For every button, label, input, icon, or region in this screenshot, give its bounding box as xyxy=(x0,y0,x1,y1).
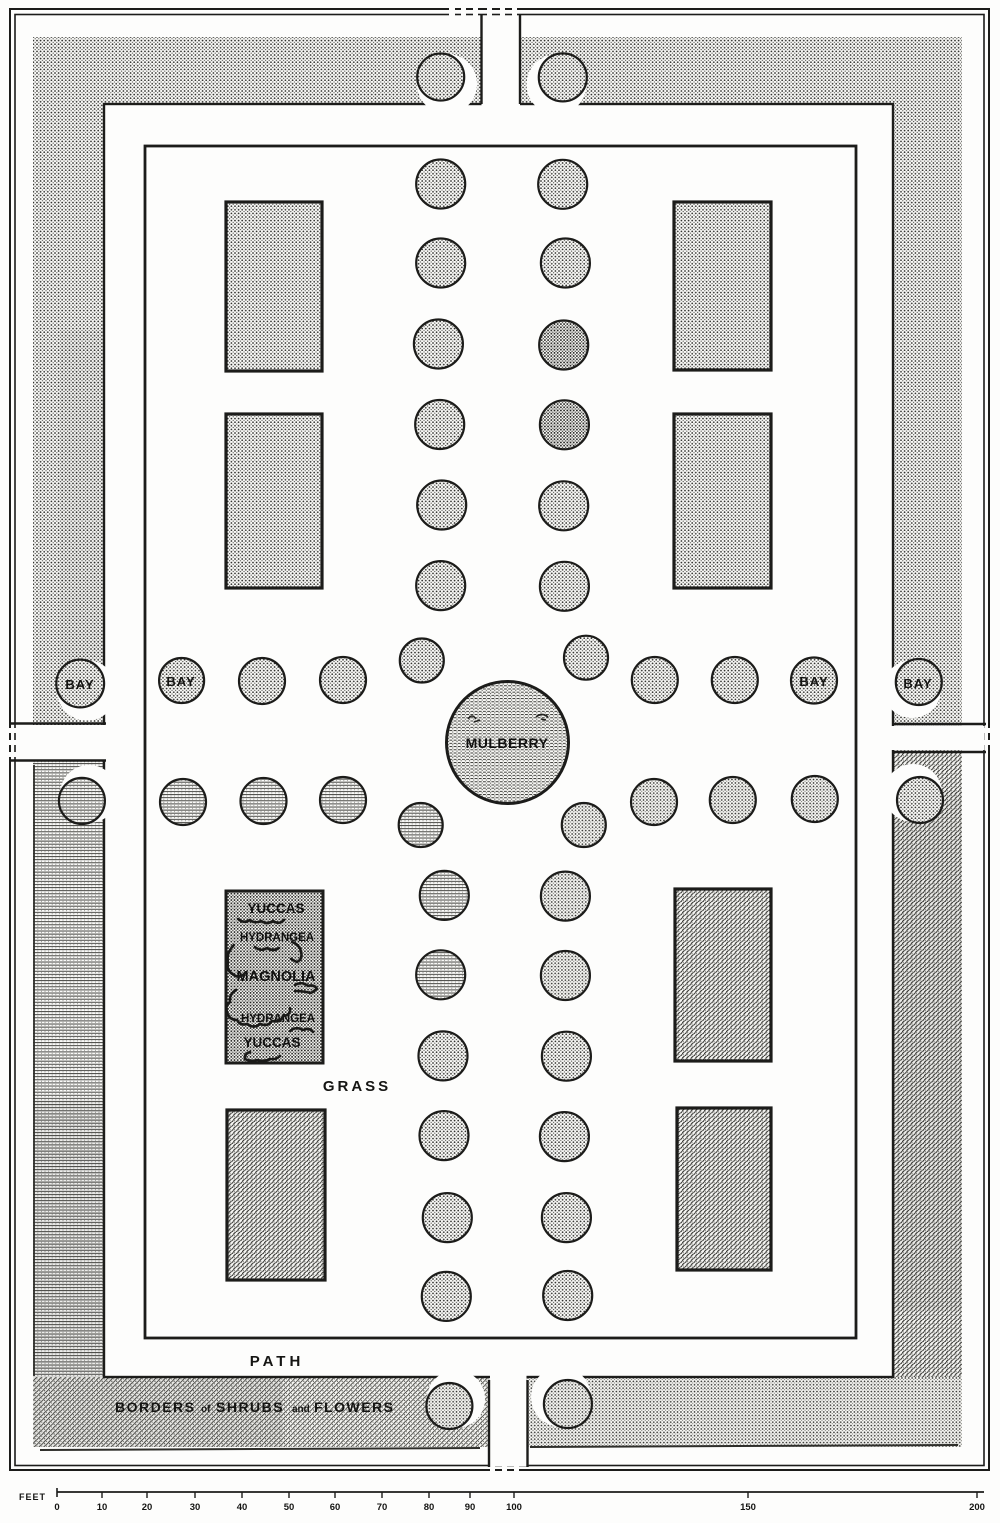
svg-text:BAY: BAY xyxy=(903,676,932,691)
svg-text:FEET: FEET xyxy=(19,1492,46,1502)
svg-text:100: 100 xyxy=(506,1502,522,1513)
svg-text:HYDRANGEA: HYDRANGEA xyxy=(240,932,314,944)
svg-text:90: 90 xyxy=(465,1502,476,1513)
svg-text:150: 150 xyxy=(740,1502,756,1513)
svg-text:BAY: BAY xyxy=(799,674,828,689)
svg-text:MULBERRY: MULBERRY xyxy=(466,735,549,751)
svg-text:10: 10 xyxy=(97,1502,108,1513)
svg-text:YUCCAS: YUCCAS xyxy=(243,1035,300,1050)
svg-text:BORDERS: BORDERS xyxy=(115,1399,196,1415)
svg-text:HYDRANGEA: HYDRANGEA xyxy=(241,1013,315,1025)
svg-text:20: 20 xyxy=(142,1502,153,1513)
svg-text:60: 60 xyxy=(330,1502,341,1513)
svg-text:BAY: BAY xyxy=(166,674,195,689)
svg-text:FLOWERS: FLOWERS xyxy=(314,1399,395,1415)
svg-text:and: and xyxy=(292,1404,310,1415)
svg-text:0: 0 xyxy=(54,1502,59,1513)
svg-text:40: 40 xyxy=(237,1502,248,1513)
svg-text:YUCCAS: YUCCAS xyxy=(247,901,304,916)
svg-text:GRASS: GRASS xyxy=(323,1078,391,1095)
svg-text:200: 200 xyxy=(969,1502,985,1513)
svg-text:of: of xyxy=(201,1404,211,1415)
svg-text:PATH: PATH xyxy=(250,1353,305,1370)
svg-text:SHRUBS: SHRUBS xyxy=(216,1399,284,1415)
svg-text:70: 70 xyxy=(377,1502,388,1513)
svg-text:30: 30 xyxy=(190,1502,201,1513)
svg-text:80: 80 xyxy=(424,1502,435,1513)
svg-text:BAY: BAY xyxy=(65,677,94,692)
svg-text:50: 50 xyxy=(284,1502,295,1513)
